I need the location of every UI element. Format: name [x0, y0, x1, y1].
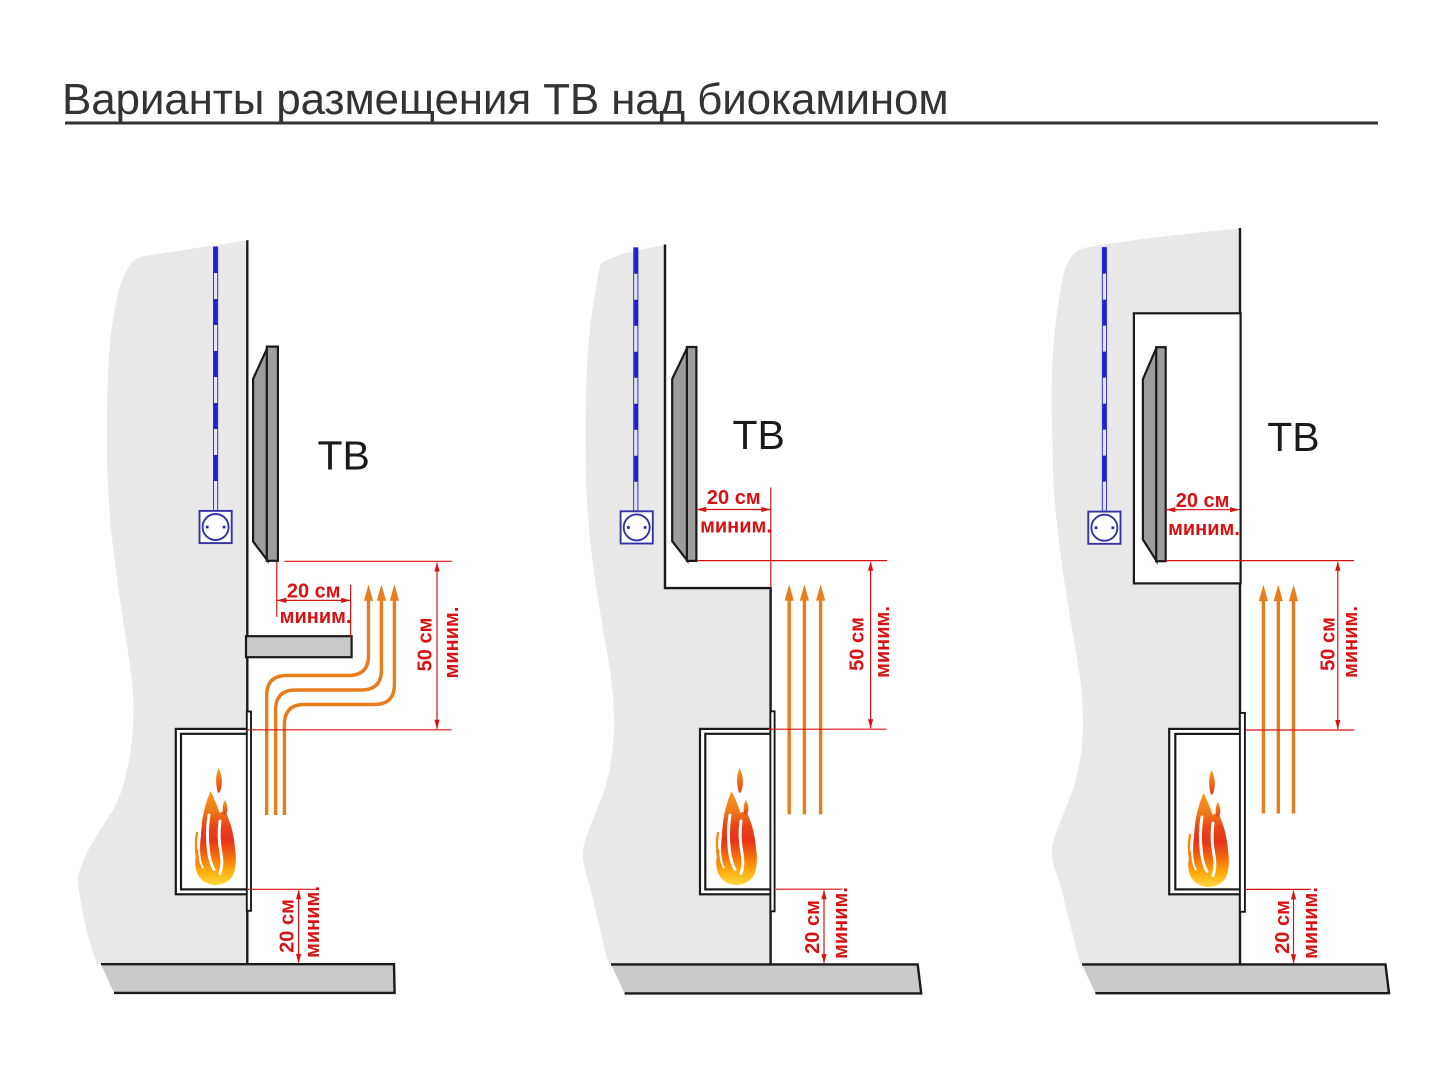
- svg-text:50 см: 50 см: [415, 618, 437, 672]
- svg-text:20 см: 20 см: [1272, 900, 1294, 954]
- svg-text:миним.: миним.: [302, 886, 324, 958]
- svg-text:20 см: 20 см: [802, 900, 824, 954]
- svg-text:миним.: миним.: [441, 607, 463, 679]
- svg-text:миним.: миним.: [1168, 518, 1240, 540]
- svg-text:миним.: миним.: [1300, 887, 1322, 959]
- svg-text:Варианты размещения ТВ над био: Варианты размещения ТВ над биокамином: [62, 75, 948, 124]
- svg-text:миним.: миним.: [280, 606, 352, 628]
- svg-text:миним.: миним.: [830, 887, 852, 959]
- svg-text:20 см: 20 см: [707, 487, 761, 509]
- svg-text:ТВ: ТВ: [733, 412, 785, 458]
- svg-text:миним.: миним.: [872, 606, 894, 678]
- svg-text:миним.: миним.: [1340, 606, 1362, 678]
- svg-text:ТВ: ТВ: [318, 433, 370, 479]
- svg-text:миним.: миним.: [700, 516, 772, 538]
- svg-text:20 см: 20 см: [287, 581, 341, 603]
- svg-text:50 см: 50 см: [1318, 617, 1340, 671]
- svg-text:50 см: 50 см: [847, 617, 869, 671]
- svg-text:ТВ: ТВ: [1267, 414, 1319, 460]
- svg-text:20 см: 20 см: [1176, 490, 1230, 512]
- svg-text:20 см: 20 см: [277, 899, 299, 953]
